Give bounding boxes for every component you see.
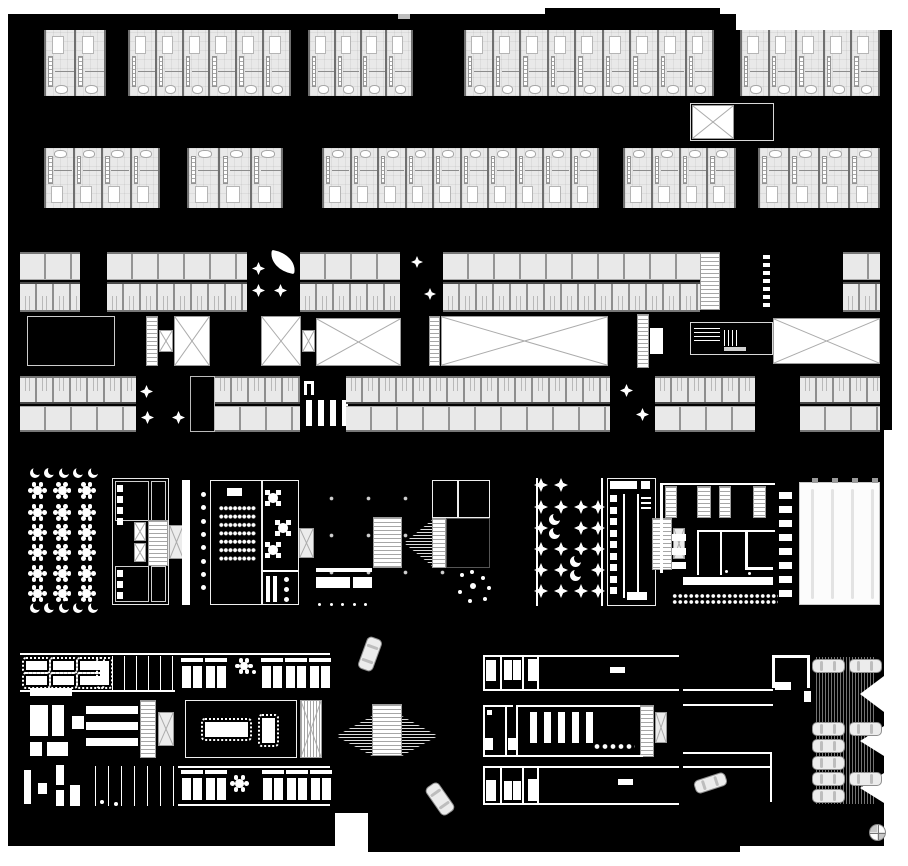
wall-line xyxy=(483,689,679,691)
stair-icon xyxy=(546,156,550,184)
stair-icon xyxy=(753,486,766,518)
room-block xyxy=(38,783,47,794)
desk-icon xyxy=(285,658,307,662)
bathtub-icon xyxy=(584,85,596,94)
wall-line xyxy=(529,71,546,72)
cabin-strip xyxy=(843,252,880,312)
car-icon xyxy=(812,722,845,736)
column-icon xyxy=(201,519,206,524)
room-unit xyxy=(740,30,770,96)
lane-line xyxy=(851,489,854,599)
wall-line xyxy=(415,170,432,171)
wall-line xyxy=(716,170,734,171)
bathtub-icon xyxy=(580,150,592,158)
wall-line xyxy=(769,170,788,171)
stair-icon xyxy=(468,56,472,86)
bathtub-icon xyxy=(525,150,537,158)
corridor-room-band xyxy=(800,406,880,432)
bathtub-icon xyxy=(557,85,569,94)
bathtub-icon xyxy=(165,85,176,94)
wall-line xyxy=(516,705,646,707)
round-table xyxy=(231,775,248,792)
wall-line xyxy=(318,71,334,72)
north-compass-icon xyxy=(869,824,886,841)
bathtub-icon xyxy=(218,85,229,94)
round-table xyxy=(78,585,95,602)
kitchen-unit-icon xyxy=(610,587,617,594)
room-unit xyxy=(544,148,572,208)
lounge-chair-icon xyxy=(549,528,560,539)
room-unit xyxy=(76,30,106,96)
bed-icon xyxy=(658,186,670,202)
bathtub-icon xyxy=(552,150,564,158)
room-unit xyxy=(790,148,820,208)
wall-line xyxy=(178,804,330,806)
round-table xyxy=(29,565,46,582)
top-edge-tick xyxy=(398,14,410,19)
wall-line xyxy=(395,71,411,72)
bathtub-icon xyxy=(192,85,203,94)
wall-line xyxy=(552,170,569,171)
wall-tab xyxy=(812,478,818,483)
room-block xyxy=(70,785,80,806)
bathtub-icon xyxy=(230,150,243,158)
lift-icon xyxy=(159,330,173,352)
room-block xyxy=(72,716,84,729)
room-unit xyxy=(681,148,709,208)
room-unit xyxy=(44,148,75,208)
desk-icon xyxy=(181,658,203,662)
wall-line xyxy=(557,71,574,72)
stair-icon xyxy=(363,56,367,86)
round-table xyxy=(54,504,71,521)
guest-room-row xyxy=(623,148,736,208)
stack-shelf xyxy=(530,712,537,743)
bed-icon xyxy=(215,36,226,54)
corridor-cell-band xyxy=(443,282,700,312)
workshop-benches xyxy=(86,706,138,752)
chair-icon xyxy=(284,597,289,602)
counter-icon xyxy=(672,548,686,555)
chair-icon xyxy=(487,586,491,590)
cabin-strip xyxy=(346,376,610,432)
car-icon xyxy=(812,659,845,673)
room-unit xyxy=(387,30,413,96)
chair-icon xyxy=(748,572,751,575)
bathtub-icon xyxy=(360,150,372,158)
counter-icon xyxy=(117,592,123,599)
kitchen-room xyxy=(151,566,166,602)
stair-icon xyxy=(523,56,527,86)
study-unit xyxy=(286,770,308,800)
plaza-stair xyxy=(372,704,402,756)
car-icon xyxy=(849,659,882,673)
bed-icon xyxy=(713,186,725,202)
room-block xyxy=(30,705,48,736)
bed-icon xyxy=(830,36,842,54)
wall-line xyxy=(502,71,519,72)
bed-icon xyxy=(108,186,120,202)
wall-line xyxy=(387,170,404,171)
bathtub-icon xyxy=(85,85,98,94)
stair-icon xyxy=(854,56,858,86)
wall-line xyxy=(695,71,712,72)
stair-icon xyxy=(132,56,136,86)
bathtub-icon xyxy=(861,85,873,94)
cross-brace-icon xyxy=(159,713,173,745)
room-unit xyxy=(75,148,104,208)
bathtub-icon xyxy=(442,150,454,158)
bathtub-icon xyxy=(138,85,149,94)
bed-icon xyxy=(384,186,396,202)
bed-icon xyxy=(549,186,561,202)
bathtub-icon xyxy=(612,85,624,94)
bathtub-icon xyxy=(750,85,762,94)
wall-line xyxy=(661,170,679,171)
desk-icon xyxy=(298,778,307,800)
bathtub-icon xyxy=(474,85,486,94)
room-unit xyxy=(770,30,798,96)
wall-line xyxy=(483,755,643,757)
wall-line xyxy=(20,653,330,655)
bed-icon xyxy=(499,36,511,54)
column-icon xyxy=(201,532,206,537)
guest-room-row xyxy=(308,30,413,96)
stair-icon xyxy=(48,56,53,86)
stair-icon xyxy=(665,486,677,518)
cross-brace-icon xyxy=(300,529,313,557)
counter-icon xyxy=(117,496,123,503)
chair-icon xyxy=(284,587,289,592)
counter-icon xyxy=(610,481,637,489)
lift-icon xyxy=(300,700,322,758)
desk-icon xyxy=(322,778,331,800)
stair-icon xyxy=(381,156,385,184)
desk-icon xyxy=(182,666,191,688)
desk-icon xyxy=(311,778,320,800)
wall-line xyxy=(497,170,514,171)
wall-line xyxy=(332,170,349,171)
wall-line xyxy=(623,494,625,598)
chair-row xyxy=(593,743,635,750)
wall-line xyxy=(192,71,209,72)
stair-icon xyxy=(637,314,649,368)
cross-brace-icon xyxy=(303,331,314,351)
stair-icon xyxy=(134,156,139,184)
corridor-cell-band xyxy=(107,282,247,312)
room-unit xyxy=(797,30,825,96)
ramp-lines xyxy=(724,330,738,346)
room-unit xyxy=(631,30,659,96)
bed-icon xyxy=(581,36,593,54)
wall-line xyxy=(55,71,74,72)
wall-line xyxy=(360,170,377,171)
bathtub-icon xyxy=(833,85,845,94)
wall-tab xyxy=(832,478,838,483)
cross-brace-icon xyxy=(135,544,145,561)
bathtub-icon xyxy=(633,150,645,158)
wall-line xyxy=(261,170,281,171)
cabin-strip xyxy=(20,376,136,432)
bed-icon xyxy=(664,36,676,54)
room-unit xyxy=(659,30,687,96)
counter-icon xyxy=(627,592,647,600)
bed-icon xyxy=(412,186,424,202)
lounge-chair-icon xyxy=(30,468,40,478)
chair-icon xyxy=(483,597,487,601)
cross-brace-icon xyxy=(656,713,666,742)
room-unit xyxy=(494,30,522,96)
bathtub-icon xyxy=(799,150,812,158)
stair-icon xyxy=(389,56,393,86)
counter-icon xyxy=(610,667,625,673)
room-block xyxy=(24,770,31,804)
room-unit xyxy=(336,30,362,96)
room-unit xyxy=(187,148,220,208)
room-unit xyxy=(517,148,545,208)
kitchen-unit-icon xyxy=(610,507,617,514)
cross-brace-icon xyxy=(160,331,172,351)
corridor-cell-band xyxy=(843,282,880,312)
bathtub-icon xyxy=(502,85,514,94)
stair-icon xyxy=(186,56,190,86)
seating-grid xyxy=(219,504,256,563)
door-leaf xyxy=(513,660,521,680)
bathtub-icon xyxy=(261,150,274,158)
bed-icon xyxy=(802,36,814,54)
room-unit xyxy=(820,148,850,208)
study-unit xyxy=(285,658,307,688)
stair-icon xyxy=(312,56,316,86)
bed-icon xyxy=(392,36,403,54)
counter-icon xyxy=(672,534,686,541)
guest-room-row xyxy=(44,30,106,96)
corridor-cell-band xyxy=(346,376,610,404)
car-icon xyxy=(812,739,845,753)
bed-icon xyxy=(686,186,698,202)
door-leaf xyxy=(504,660,512,680)
stair-icon xyxy=(633,56,637,86)
wall-line xyxy=(483,705,513,707)
corridor-room-band xyxy=(107,252,247,280)
room-block xyxy=(56,790,64,806)
desk-icon xyxy=(181,770,203,774)
room-unit xyxy=(379,148,407,208)
bed-icon xyxy=(80,186,92,202)
stair-icon xyxy=(519,156,523,184)
stair-icon xyxy=(744,56,748,86)
stair-icon xyxy=(146,316,158,366)
stair-icon xyxy=(436,156,440,184)
study-unit xyxy=(309,658,331,688)
link-bridge xyxy=(299,528,314,558)
stair-icon xyxy=(496,56,500,86)
bed-icon xyxy=(269,36,280,54)
cross-brace-icon xyxy=(301,701,321,757)
canvas-top-right-notch xyxy=(736,14,884,30)
door-leaf xyxy=(486,780,496,801)
road-line xyxy=(770,752,772,802)
stair-icon xyxy=(239,56,243,86)
bathtub-icon xyxy=(140,150,152,158)
bed-icon xyxy=(258,186,271,202)
study-unit xyxy=(262,770,284,800)
kitchen-unit-icon xyxy=(610,518,617,525)
room-unit xyxy=(549,30,577,96)
wall-line xyxy=(483,655,485,691)
bed-icon xyxy=(522,186,534,202)
bed-icon xyxy=(189,36,200,54)
round-table xyxy=(29,504,46,521)
stair-icon xyxy=(212,56,216,86)
bed-icon xyxy=(747,36,759,54)
desk-icon xyxy=(205,770,227,774)
shelf-line xyxy=(641,497,651,499)
wall-line xyxy=(218,71,235,72)
garage-door xyxy=(775,682,791,690)
lift-icon xyxy=(158,712,174,746)
bed-icon xyxy=(826,186,839,202)
table-4-chairs xyxy=(264,541,282,559)
bathtub-icon xyxy=(661,150,673,158)
wall-line xyxy=(522,655,524,691)
counter-icon xyxy=(641,481,650,489)
wall-line xyxy=(505,705,507,757)
corridor-cell-band xyxy=(20,376,136,404)
cross-brace-icon xyxy=(774,319,879,363)
bed-icon xyxy=(195,186,208,202)
bathtub-icon xyxy=(667,85,679,94)
stair-icon xyxy=(627,156,631,184)
stair-icon xyxy=(762,156,767,184)
door-leaf xyxy=(528,779,538,801)
room-divider xyxy=(457,480,459,518)
bed-icon xyxy=(137,186,149,202)
work-table xyxy=(100,661,109,685)
wall-line xyxy=(369,71,385,72)
counter-icon xyxy=(618,779,633,785)
guest-room-row xyxy=(464,30,714,96)
wall-line xyxy=(140,170,158,171)
road-line xyxy=(683,752,771,754)
lounge-chair-icon xyxy=(549,514,560,525)
service-block xyxy=(27,316,115,366)
stair-icon xyxy=(326,156,330,184)
room-unit xyxy=(604,30,632,96)
wall-line xyxy=(245,71,262,72)
counter-icon xyxy=(117,518,123,525)
round-table xyxy=(236,658,252,674)
stack-shelf xyxy=(544,712,551,743)
upper-room xyxy=(432,480,490,518)
room-unit xyxy=(572,148,600,208)
room-unit xyxy=(132,148,161,208)
stair-icon xyxy=(491,156,495,184)
wall-line xyxy=(263,570,298,572)
room-unit xyxy=(264,30,291,96)
stair-icon xyxy=(574,156,578,184)
round-table xyxy=(54,565,71,582)
room-unit xyxy=(653,148,681,208)
desk-icon xyxy=(217,666,226,688)
room-unit xyxy=(128,30,157,96)
door-leaf xyxy=(513,781,521,800)
car-icon xyxy=(812,772,845,786)
bathtub-icon xyxy=(529,85,541,94)
bathtub-icon xyxy=(778,85,790,94)
canvas-right-edge xyxy=(884,30,892,430)
bed-icon xyxy=(857,36,869,54)
wall-line xyxy=(861,71,878,72)
round-table xyxy=(78,524,95,541)
corridor-room-band xyxy=(346,406,610,432)
round-table xyxy=(29,524,46,541)
stair-icon xyxy=(661,56,665,86)
room-unit xyxy=(210,30,237,96)
wall-line xyxy=(633,170,651,171)
bed-icon xyxy=(82,36,95,54)
desk-icon xyxy=(273,666,282,688)
lounge-chair-icon xyxy=(30,603,40,613)
wall-line xyxy=(178,766,330,768)
desk-icon xyxy=(310,666,319,688)
room-unit xyxy=(308,30,336,96)
stair-icon xyxy=(578,56,582,86)
desk-icon xyxy=(286,666,295,688)
guest-room-row xyxy=(187,148,283,208)
wall-line xyxy=(750,71,767,72)
stair-icon xyxy=(689,56,693,86)
stair-icon xyxy=(799,56,803,86)
kitchen-unit-icon xyxy=(610,553,617,560)
chair-icon xyxy=(460,573,464,577)
bed-icon xyxy=(766,186,779,202)
door-leaf xyxy=(504,781,512,800)
wall-line xyxy=(580,170,597,171)
void-hall xyxy=(316,318,401,366)
lounge-chair-icon xyxy=(570,556,581,567)
corridor-cell-band xyxy=(215,376,300,404)
room-unit xyxy=(462,148,490,208)
stair-icon xyxy=(409,156,413,184)
guest-room-row xyxy=(44,148,160,208)
corridor-room-band xyxy=(443,252,700,280)
cross-brace-icon xyxy=(135,523,145,540)
shelf-icon xyxy=(266,576,270,602)
bathtub-icon xyxy=(369,85,380,94)
wall-line xyxy=(483,655,679,657)
round-table xyxy=(29,482,46,499)
bed-icon xyxy=(775,36,787,54)
chair-icon xyxy=(458,590,462,594)
stair-icon xyxy=(48,156,53,184)
room-unit xyxy=(850,148,880,208)
cross-brace-icon xyxy=(175,317,209,365)
podium xyxy=(227,488,242,496)
stair-icon xyxy=(640,705,654,757)
guest-room-row xyxy=(322,148,599,208)
bike-rack-icon xyxy=(330,400,336,426)
stair-icon xyxy=(338,56,342,86)
cabin-strip xyxy=(443,252,700,312)
wall-line xyxy=(54,170,72,171)
room-unit xyxy=(687,30,715,96)
bathtub-icon xyxy=(198,150,211,158)
shelf-icon xyxy=(273,576,277,602)
desk-icon xyxy=(193,778,202,800)
work-table xyxy=(53,661,74,670)
bed-icon xyxy=(226,186,239,202)
